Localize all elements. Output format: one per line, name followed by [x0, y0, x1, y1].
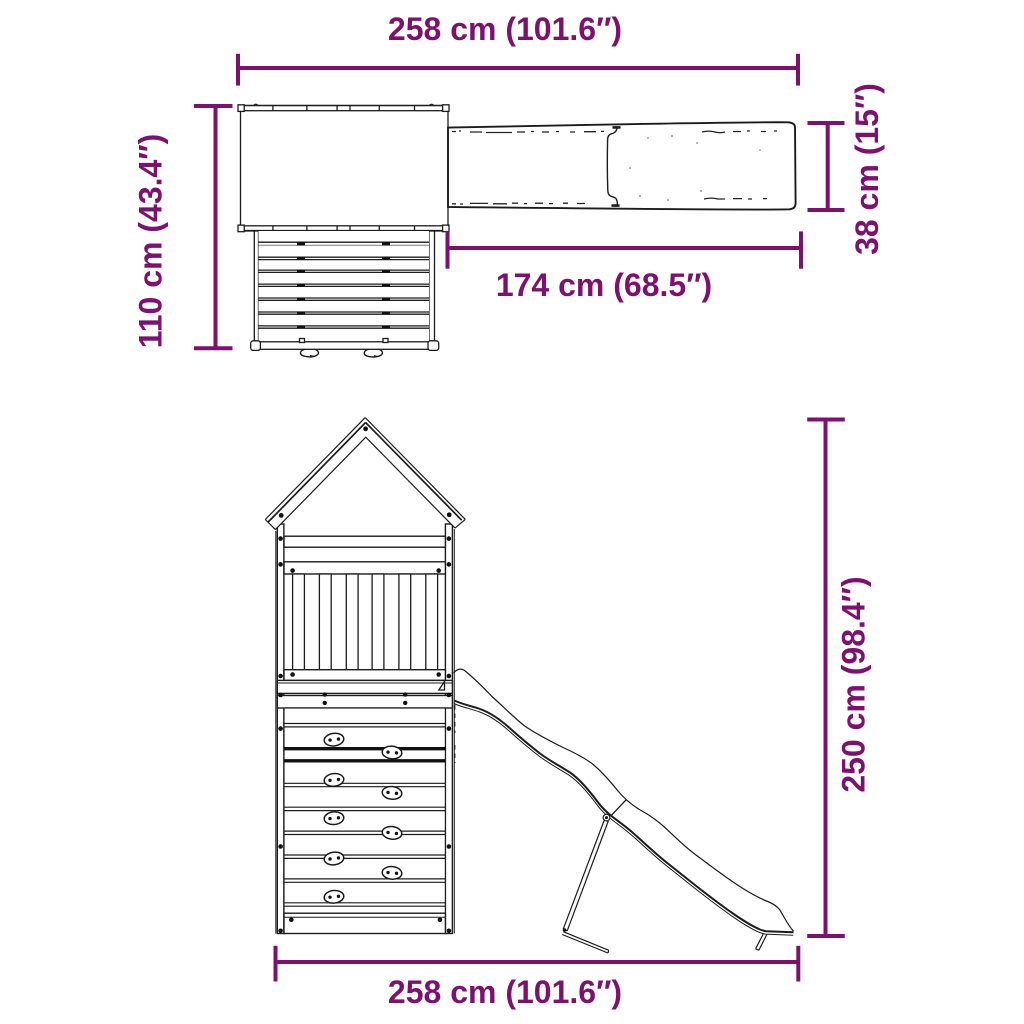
svg-text:110 cm (43.4″): 110 cm (43.4″) [133, 134, 169, 349]
svg-text:258 cm (101.6″): 258 cm (101.6″) [388, 11, 622, 47]
svg-text:250 cm (98.4″): 250 cm (98.4″) [836, 576, 872, 792]
svg-text:174 cm (68.5″): 174 cm (68.5″) [496, 267, 712, 303]
svg-text:258 cm (101.6″): 258 cm (101.6″) [388, 974, 622, 1010]
svg-text:38 cm (15″): 38 cm (15″) [849, 83, 885, 255]
